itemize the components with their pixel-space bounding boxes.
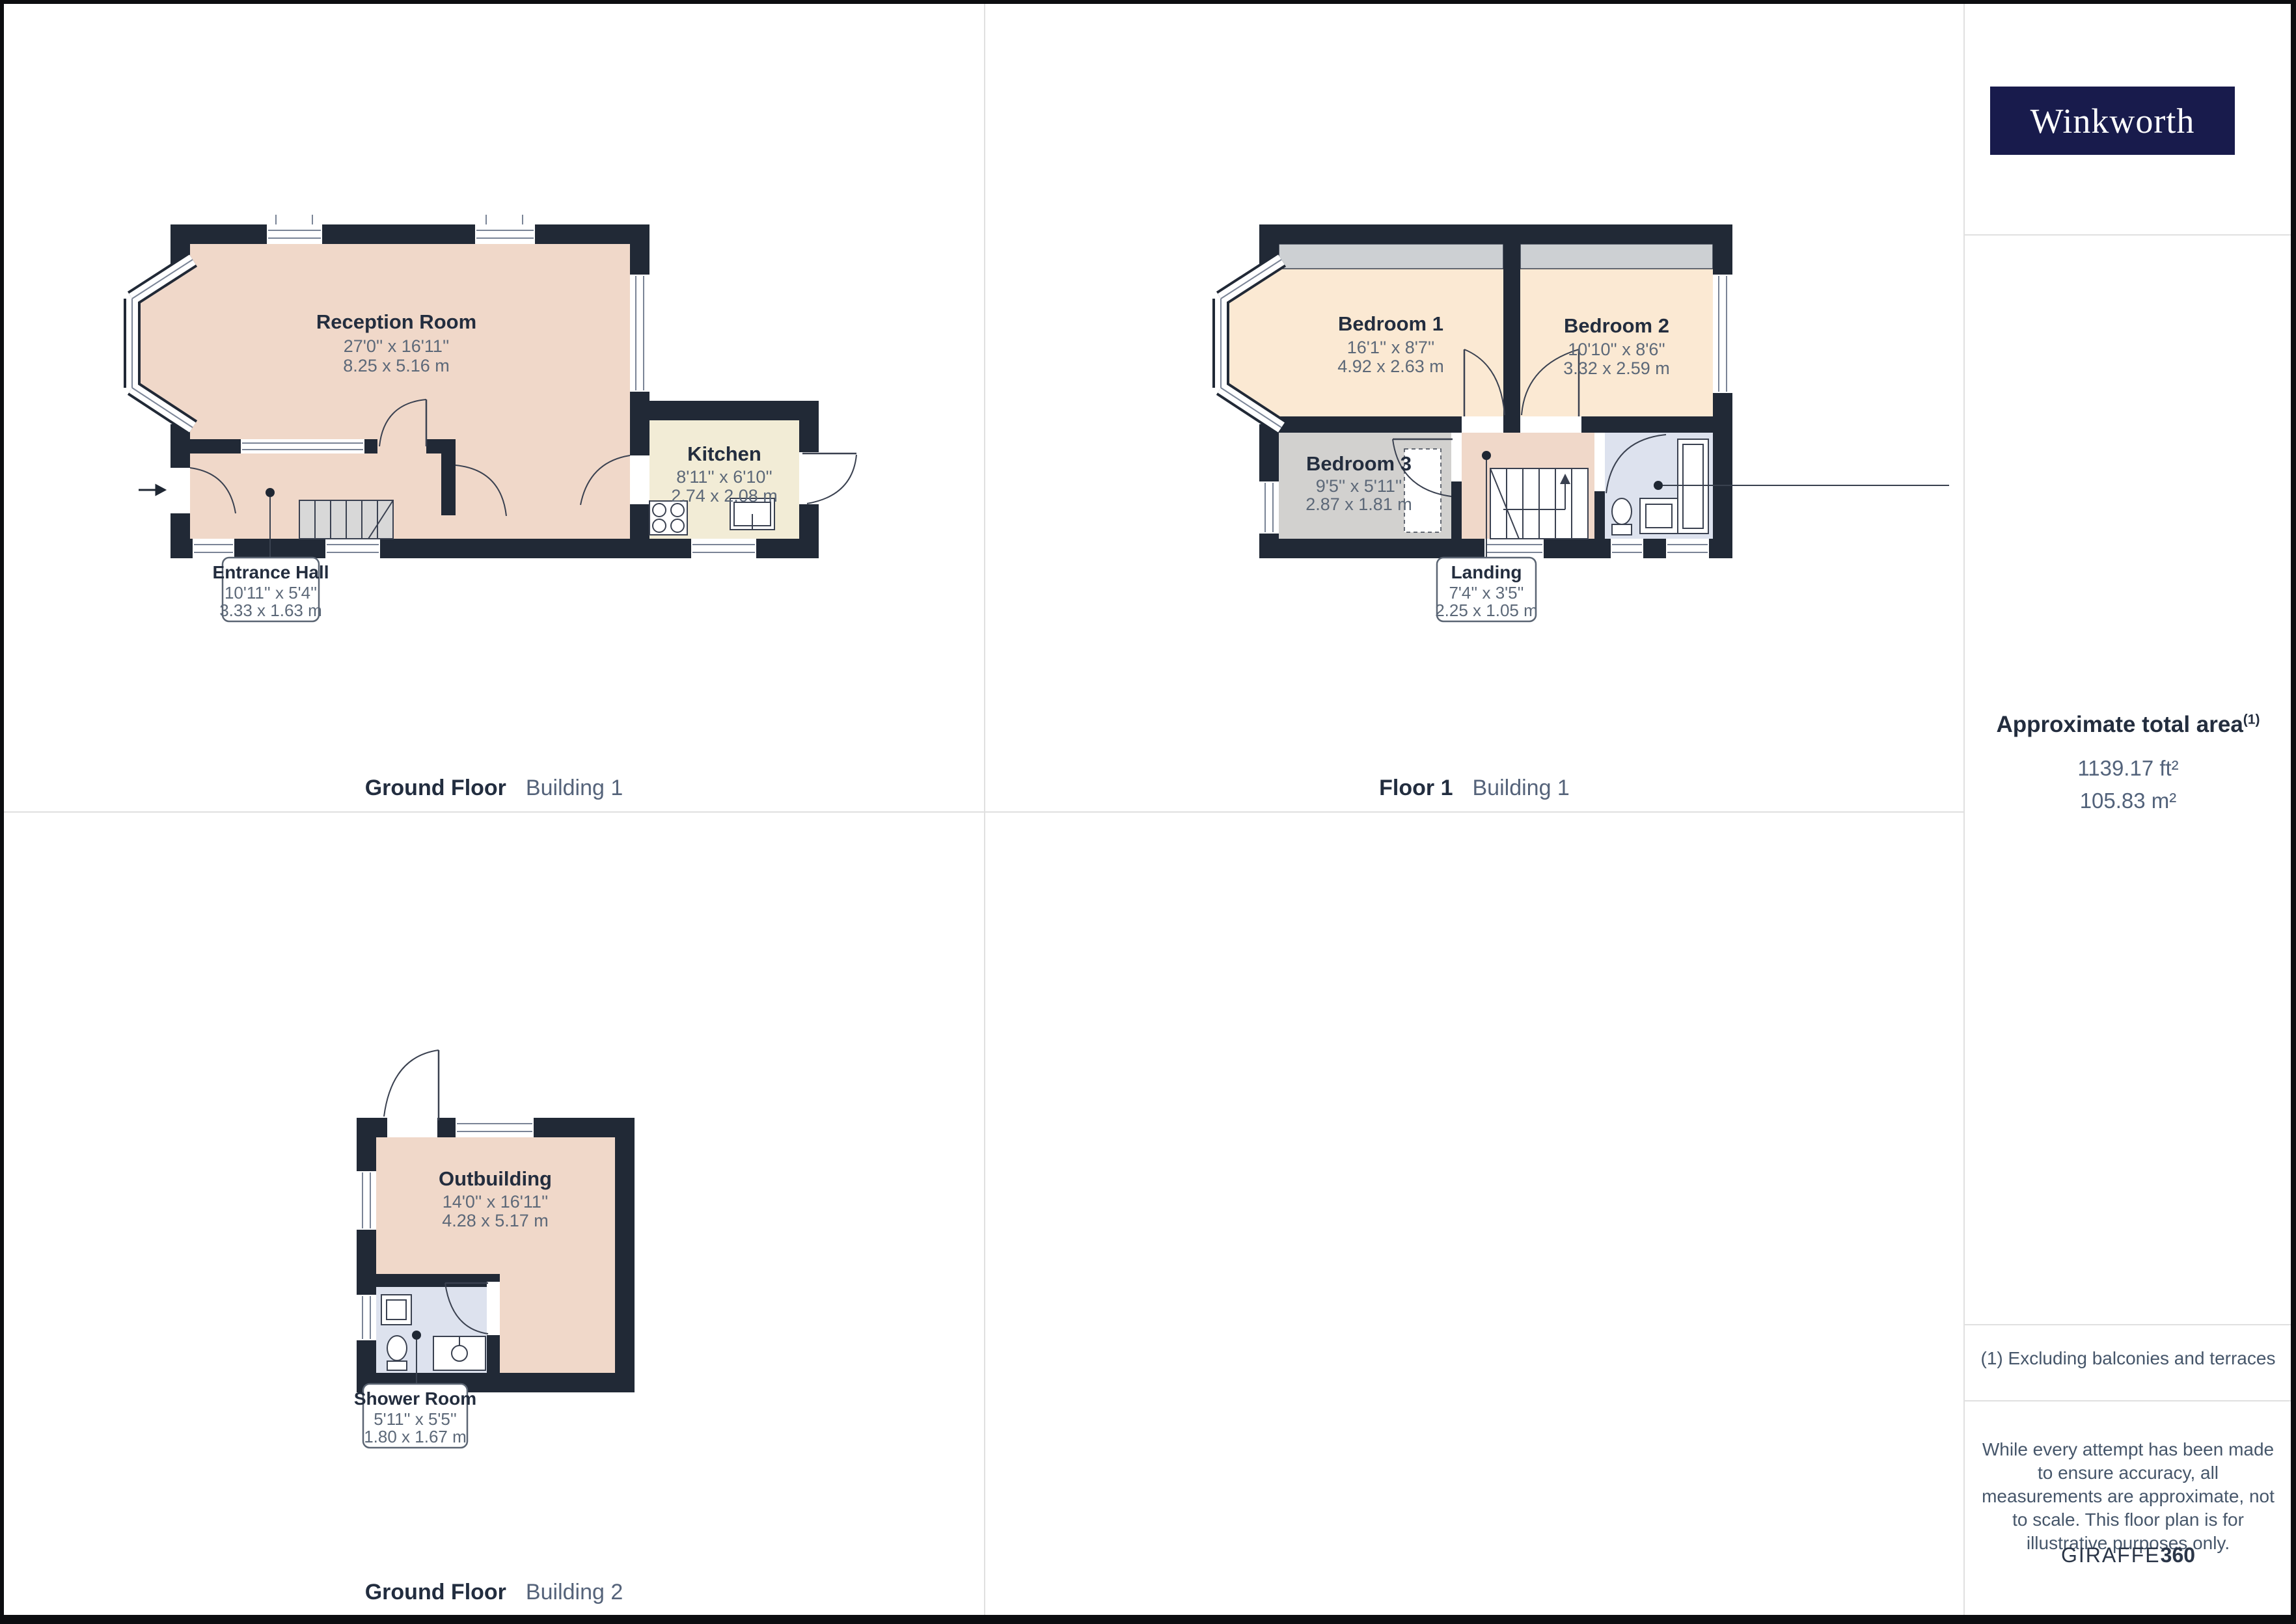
area-footnote: (1) Excluding balconies and terraces xyxy=(1969,1348,2288,1369)
hob-icon xyxy=(649,501,687,535)
caption-ground-floor-building-1: Ground Floor Building 1 xyxy=(4,776,984,801)
total-area-ft2: 1139.17 ft² xyxy=(1972,752,2284,785)
shower-room-dims-imperial: 5'11'' x 5'5'' xyxy=(374,1409,457,1429)
outbuilding-dims-imperial: 14'0'' x 16'11'' xyxy=(443,1192,549,1211)
floorplan-floor-1-building-1: Bedroom 1 16'1'' x 8'7'' 4.92 x 2.63 m B… xyxy=(1197,215,1959,651)
page-border-bottom xyxy=(0,1615,2296,1624)
total-area-title: Approximate total area(1) xyxy=(1972,712,2284,738)
page-border-right xyxy=(2291,0,2296,1624)
floorplan-ground-floor-building-2: Outbuilding 14'0'' x 16'11'' 4.28 x 5.17… xyxy=(312,976,729,1490)
winkworth-logo-text: Winkworth xyxy=(2030,101,2195,141)
giraffe360-logo-regular: GIRAFFE xyxy=(2061,1543,2161,1567)
caption-building-name: Building 2 xyxy=(526,1580,623,1605)
f1-room-fills xyxy=(1221,244,1713,539)
floorplan-ground-floor-building-1: Reception Room 27'0'' x 16'11'' 8.25 x 5… xyxy=(117,215,924,651)
caption-ground-floor-building-2: Ground Floor Building 2 xyxy=(4,1580,984,1605)
toilet-icon xyxy=(1612,498,1632,535)
caption-building-name: Building 1 xyxy=(1473,776,1570,801)
page-border-top xyxy=(0,0,2296,4)
caption-floor-name: Ground Floor xyxy=(365,1580,506,1605)
outbuilding-dims-metric: 4.28 x 5.17 m xyxy=(442,1211,549,1230)
shower-sink-icon xyxy=(381,1295,411,1325)
giraffe360-logo: GIRAFFE360 xyxy=(1978,1543,2278,1567)
reception-room-dims-imperial: 27'0'' x 16'11'' xyxy=(344,336,450,356)
divider-horizontal-main xyxy=(4,811,1963,813)
entrance-hall-dims-metric: 3.33 x 1.63 m xyxy=(219,601,322,620)
divider-sidebar-footnote-top xyxy=(1965,1324,2291,1325)
gf1-stairs xyxy=(299,500,393,539)
total-area-values: 1139.17 ft² 105.83 m² xyxy=(1972,752,2284,817)
winkworth-logo: Winkworth xyxy=(1990,87,2235,155)
bedroom-3-dims-imperial: 9'5'' x 5'11'' xyxy=(1316,476,1402,496)
reception-room-dims-metric: 8.25 x 5.16 m xyxy=(343,356,450,375)
total-area-m2: 105.83 m² xyxy=(1972,785,2284,817)
kitchen-dims-imperial: 8'11'' x 6'10'' xyxy=(676,467,772,487)
reception-room-label: Reception Room xyxy=(316,310,476,333)
divider-sidebar-top xyxy=(1965,234,2291,236)
entry-arrow-icon xyxy=(156,485,165,494)
kitchen-label: Kitchen xyxy=(687,442,761,465)
caption-floor-name: Ground Floor xyxy=(365,776,506,801)
total-area-footnote-marker: (1) xyxy=(2243,712,2260,727)
landing-dims-metric: 2.25 x 1.05 m xyxy=(1435,601,1538,620)
total-area-block: Approximate total area(1) 1139.17 ft² 10… xyxy=(1972,712,2284,817)
bedroom-2-dims-metric: 3.32 x 2.59 m xyxy=(1563,359,1670,378)
bathroom-leader-dot xyxy=(1654,481,1663,490)
bath-sink-icon xyxy=(1640,498,1678,534)
entrance-hall-label: Entrance Hall xyxy=(213,562,329,582)
caption-building-name: Building 1 xyxy=(526,776,623,801)
gf2-room-labels: Outbuilding 14'0'' x 16'11'' 4.28 x 5.17… xyxy=(439,1167,552,1230)
giraffe360-logo-bold: 360 xyxy=(2161,1543,2195,1567)
total-area-title-text: Approximate total area xyxy=(1997,712,2243,737)
bedroom-1-dims-metric: 4.92 x 2.63 m xyxy=(1337,357,1444,376)
floorplan-page: Reception Room 27'0'' x 16'11'' 8.25 x 5… xyxy=(0,0,2296,1624)
bedroom-2-dims-imperial: 10'10'' x 8'6'' xyxy=(1568,340,1665,359)
bedroom-1-label: Bedroom 1 xyxy=(1338,312,1443,335)
divider-sidebar-footnote-bottom xyxy=(1965,1400,2291,1401)
shower-icon xyxy=(1678,439,1708,534)
outbuilding-label: Outbuilding xyxy=(439,1167,552,1190)
divider-vertical-sidebar xyxy=(1963,4,1965,1615)
shower-tray-icon xyxy=(433,1336,485,1370)
entrance-hall-dims-imperial: 10'11'' x 5'4'' xyxy=(225,583,317,602)
bedroom-3-dims-metric: 2.87 x 1.81 m xyxy=(1305,494,1412,514)
bedroom-3-label: Bedroom 3 xyxy=(1306,452,1412,475)
divider-vertical-left xyxy=(984,4,985,1615)
reception-room-area xyxy=(190,244,630,539)
shower-toilet-icon xyxy=(387,1336,407,1370)
disclaimer-text: While every attempt has been made to ens… xyxy=(1978,1438,2278,1555)
caption-floor-1-building-1: Floor 1 Building 1 xyxy=(985,776,1963,801)
f1-stairs xyxy=(1490,468,1588,539)
landing-label: Landing xyxy=(1451,562,1522,582)
bedroom-2-label: Bedroom 2 xyxy=(1564,314,1669,337)
shower-room-dims-metric: 1.80 x 1.67 m xyxy=(364,1427,467,1446)
bedroom-1-dims-imperial: 16'1'' x 8'7'' xyxy=(1347,338,1435,357)
kitchen-dims-metric: 2.74 x 2.08 m xyxy=(671,486,778,506)
shower-room-label: Shower Room xyxy=(354,1388,476,1409)
caption-floor-name: Floor 1 xyxy=(1379,776,1453,801)
landing-dims-imperial: 7'4'' x 3'5'' xyxy=(1449,583,1524,602)
